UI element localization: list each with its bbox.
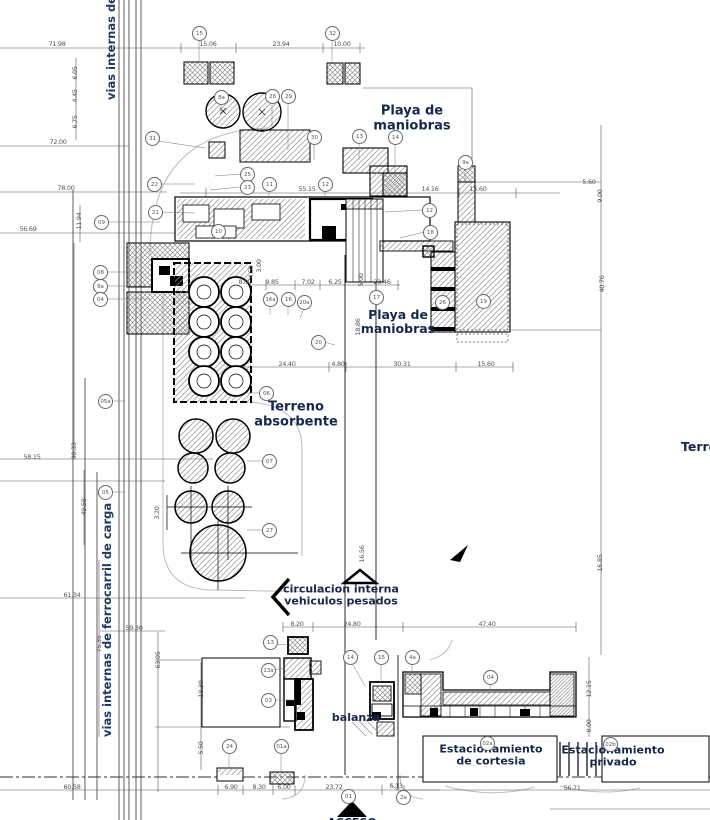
bottom-left-buildings <box>202 637 321 784</box>
circulation-up-arrow-icon <box>344 570 376 583</box>
circulation-left-arrow-icon <box>273 579 289 615</box>
building-04 <box>403 672 576 717</box>
site-plan-linework <box>0 0 710 820</box>
top-tanks <box>206 93 281 131</box>
building-19-group <box>431 166 510 342</box>
circulation-ne-arrow-icon <box>450 545 468 562</box>
floor-plan-canvas: vias internas de fe vias internas de fer… <box>0 0 710 820</box>
parking-lots <box>423 736 709 782</box>
balanza-structure <box>352 682 394 736</box>
top-docks <box>184 62 360 84</box>
railway-lines <box>73 0 141 820</box>
acceso-arrow-icon <box>337 801 367 817</box>
tank-farm <box>167 263 298 590</box>
